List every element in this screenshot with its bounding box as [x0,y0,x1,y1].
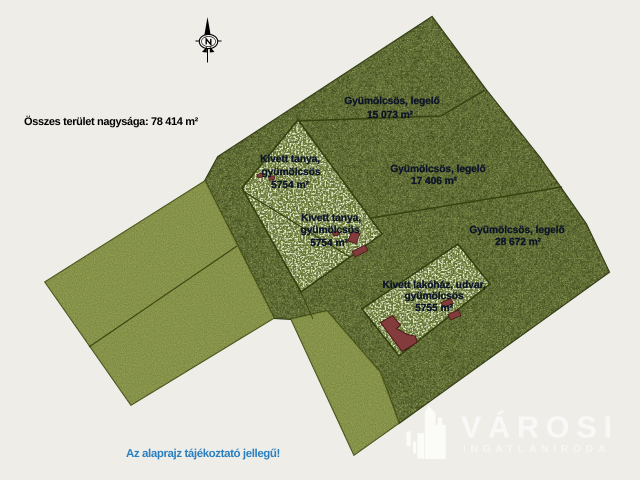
svg-text:Kivett lakóház, udvar,: Kivett lakóház, udvar, [382,280,485,291]
svg-text:Gyümölcsös, legelő: Gyümölcsös, legelő [390,164,485,175]
svg-text:Kivett tanya,: Kivett tanya, [260,154,320,165]
svg-text:INGATLANIRODA: INGATLANIRODA [463,444,610,455]
svg-text:Kivett tanya,: Kivett tanya, [301,213,361,224]
svg-text:17 406 m²: 17 406 m² [411,176,458,187]
svg-text:15 073 m²: 15 073 m² [367,110,414,121]
svg-text:gyümölcsös: gyümölcsös [261,167,320,178]
svg-text:28 672 m²: 28 672 m² [495,237,542,248]
svg-text:5755 m²: 5755 m² [415,303,453,314]
svg-text:5754 m²: 5754 m² [271,180,309,191]
svg-text:Gyümölcsös, legelő: Gyümölcsös, legelő [469,225,564,236]
svg-text:Gyümölcsös, legelő: Gyümölcsös, legelő [344,96,439,107]
svg-text:5754 m²: 5754 m² [310,238,348,249]
svg-text:VÁROSI: VÁROSI [461,410,619,445]
svg-text:Az alaprajz tájékoztató jelleg: Az alaprajz tájékoztató jellegű! [126,448,280,460]
svg-text:Összes terület nagysága: 78 41: Összes terület nagysága: 78 414 m² [24,115,199,128]
svg-text:gyümölcsös: gyümölcsös [404,291,463,302]
svg-text:gyümölcsös: gyümölcsös [300,225,359,236]
